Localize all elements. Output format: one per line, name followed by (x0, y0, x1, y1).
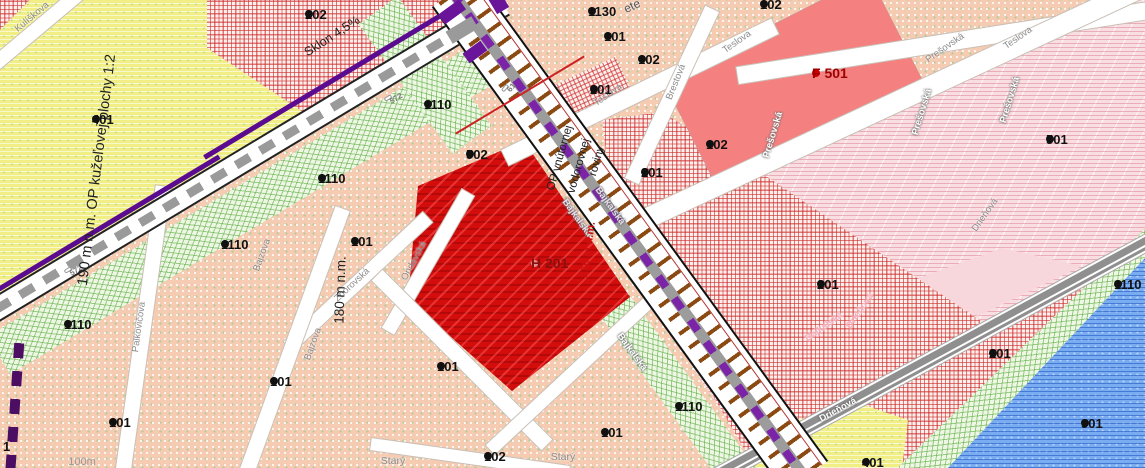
scale-text: 100m (68, 456, 96, 468)
street-label-stary: Starý (381, 455, 406, 467)
elevation-note-180: 180 m n.m. (331, 256, 348, 324)
street-label-stary: Starý (551, 451, 576, 463)
zoning-map-canvas[interactable]: 572 572 61 Kulíškova Teslova Teslova Tes… (0, 0, 1145, 468)
